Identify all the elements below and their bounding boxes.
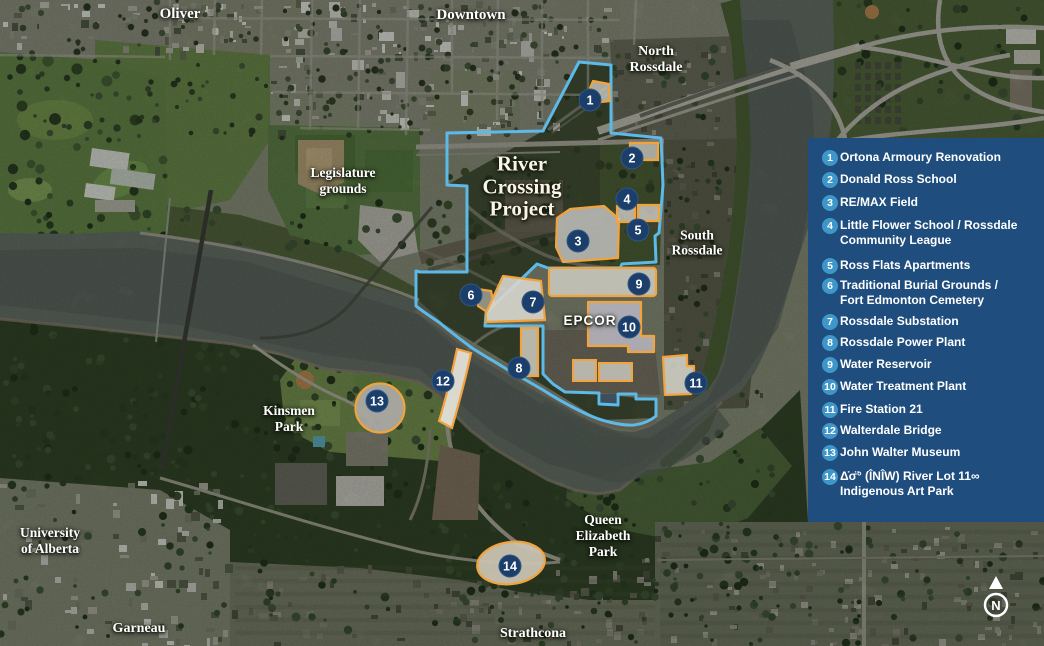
svg-text:12: 12 xyxy=(436,375,450,389)
svg-text:13: 13 xyxy=(370,395,384,409)
svg-text:3: 3 xyxy=(575,235,582,249)
svg-text:1: 1 xyxy=(587,94,594,108)
svg-text:11: 11 xyxy=(689,377,702,391)
svg-text:7: 7 xyxy=(530,296,537,310)
svg-text:8: 8 xyxy=(516,362,523,376)
svg-text:N: N xyxy=(991,598,1000,613)
svg-text:10: 10 xyxy=(622,321,636,335)
svg-text:9: 9 xyxy=(636,278,643,292)
svg-text:14: 14 xyxy=(503,560,517,574)
svg-text:5: 5 xyxy=(635,224,642,238)
svg-text:2: 2 xyxy=(629,152,636,166)
svg-text:4: 4 xyxy=(624,193,631,207)
svg-text:6: 6 xyxy=(468,289,475,303)
